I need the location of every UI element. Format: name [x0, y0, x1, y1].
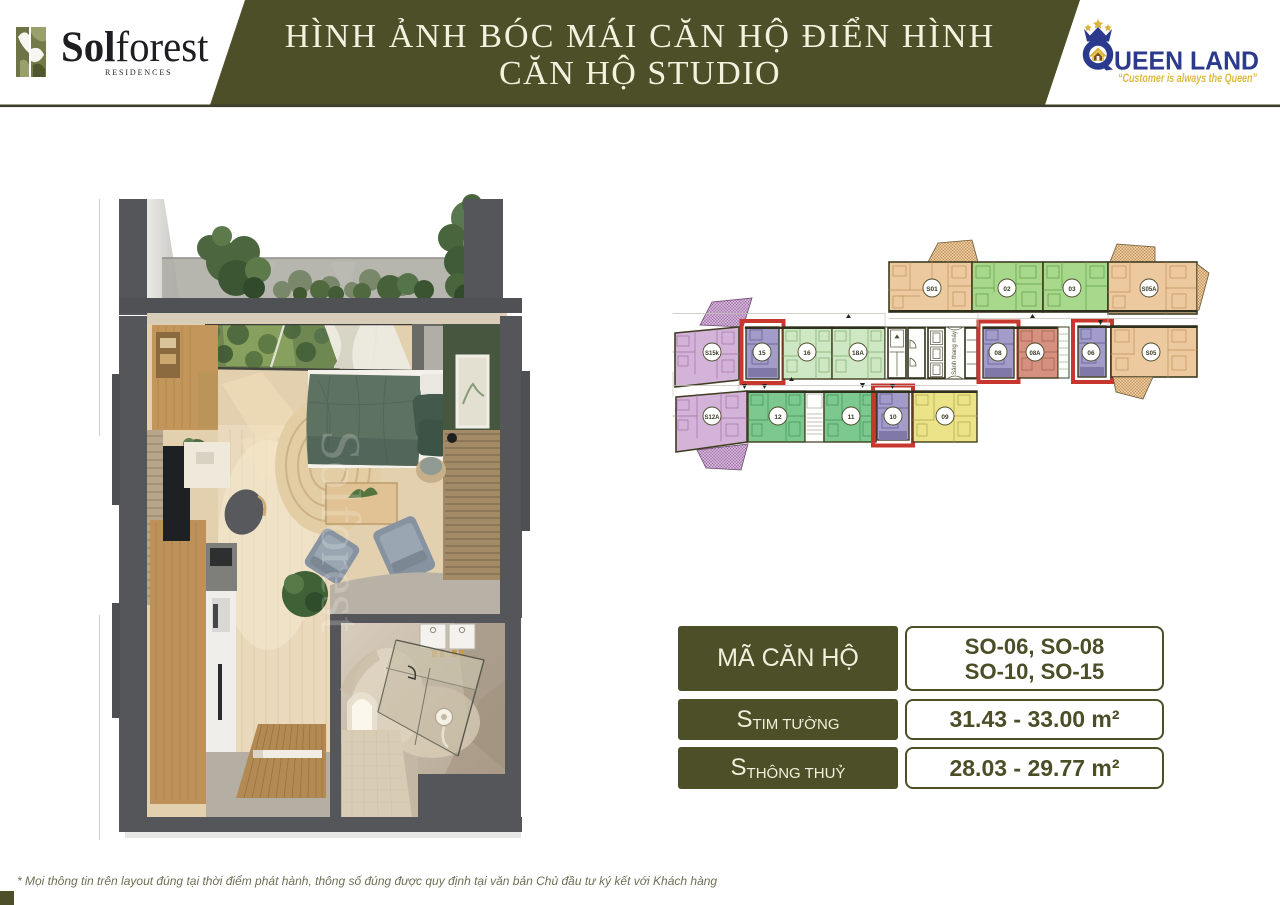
svg-text:S01: S01 [926, 286, 938, 293]
svg-text:“Customer is always the Queen”: “Customer is always the Queen” [1118, 73, 1257, 85]
svg-text:06: 06 [1087, 350, 1095, 357]
svg-text:18A: 18A [852, 350, 864, 357]
svg-text:08A: 08A [1029, 351, 1041, 357]
svg-text:S05: S05 [1146, 351, 1157, 357]
svg-text:UEEN LAND: UEEN LAND [1114, 46, 1259, 76]
svg-text:15: 15 [758, 350, 766, 357]
svg-text:03: 03 [1068, 286, 1076, 293]
svg-text:Sảnh thang máy: Sảnh thang máy [952, 331, 958, 375]
svg-text:Solforest: Solforest [309, 430, 371, 633]
svg-text:16: 16 [803, 350, 811, 357]
svg-text:08: 08 [994, 350, 1002, 357]
svg-text:09: 09 [941, 414, 949, 421]
svg-text:S05A: S05A [1141, 287, 1157, 293]
svg-text:12: 12 [774, 414, 782, 421]
svg-text:S15k: S15k [705, 351, 720, 357]
svg-text:S12A: S12A [704, 415, 720, 421]
svg-text:02: 02 [1003, 286, 1011, 293]
svg-text:10: 10 [889, 414, 897, 421]
svg-text:11: 11 [848, 414, 855, 421]
